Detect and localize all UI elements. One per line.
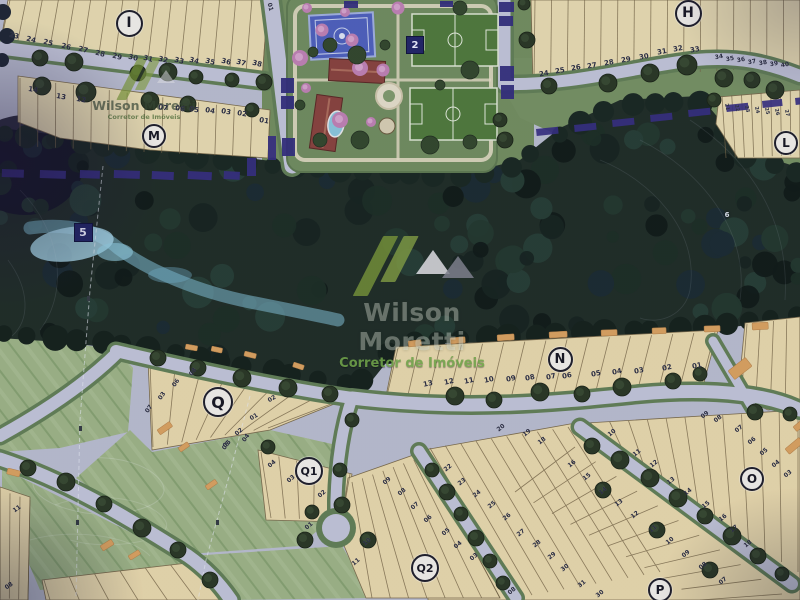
site-plan-art bbox=[0, 0, 800, 600]
soccer-field-top bbox=[412, 14, 498, 66]
masterplan-photo: Wilson Moretti Corretor de Imóveis Wilso… bbox=[0, 0, 800, 600]
left-strip-lots bbox=[0, 487, 30, 600]
sports-complex bbox=[287, 0, 498, 172]
cul-de-sac bbox=[322, 514, 350, 542]
soccer-field-bottom bbox=[410, 88, 497, 140]
gazebo bbox=[379, 118, 395, 134]
